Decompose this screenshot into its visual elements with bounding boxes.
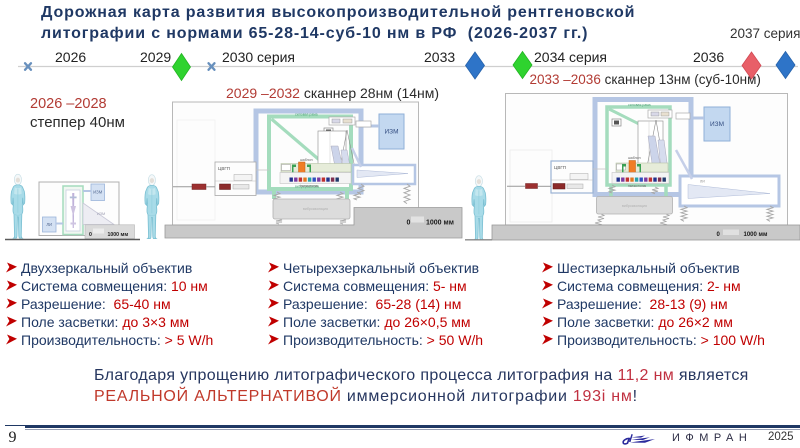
svg-text:1000 мм: 1000 мм <box>426 219 454 226</box>
svg-text:1000 мм: 1000 мм <box>744 232 768 238</box>
svg-text:пьезостолик: пьезостолик <box>628 184 647 188</box>
svg-text:ИЗМ: ИЗМ <box>97 212 105 216</box>
svg-text:1000 мм: 1000 мм <box>108 232 129 238</box>
svg-text:шаблон: шаблон <box>628 156 641 160</box>
svg-text:ЦВГП: ЦВГП <box>218 166 230 171</box>
svg-text:ЛИ: ЛИ <box>46 222 52 227</box>
svg-text:ЦВГП: ЦВГП <box>554 165 566 170</box>
svg-text:виброизоляция: виброизоляция <box>303 207 328 211</box>
svg-text:ЛИ: ЛИ <box>700 180 705 184</box>
svg-text:ИЗМ: ИЗМ <box>710 121 724 128</box>
svg-text:0: 0 <box>407 219 411 226</box>
svg-text:шаблон: шаблон <box>300 158 313 162</box>
svg-text:пьезостолик: пьезостолик <box>300 184 319 188</box>
svg-text:виброизоляция: виброизоляция <box>622 204 647 208</box>
svg-text:силовая рама: силовая рама <box>295 113 318 117</box>
svg-text:силовая рама: силовая рама <box>628 103 651 107</box>
svg-text:ИЗМ: ИЗМ <box>384 129 398 136</box>
svg-text:ИЗМ: ИЗМ <box>93 190 103 195</box>
svg-text:0: 0 <box>89 232 92 238</box>
